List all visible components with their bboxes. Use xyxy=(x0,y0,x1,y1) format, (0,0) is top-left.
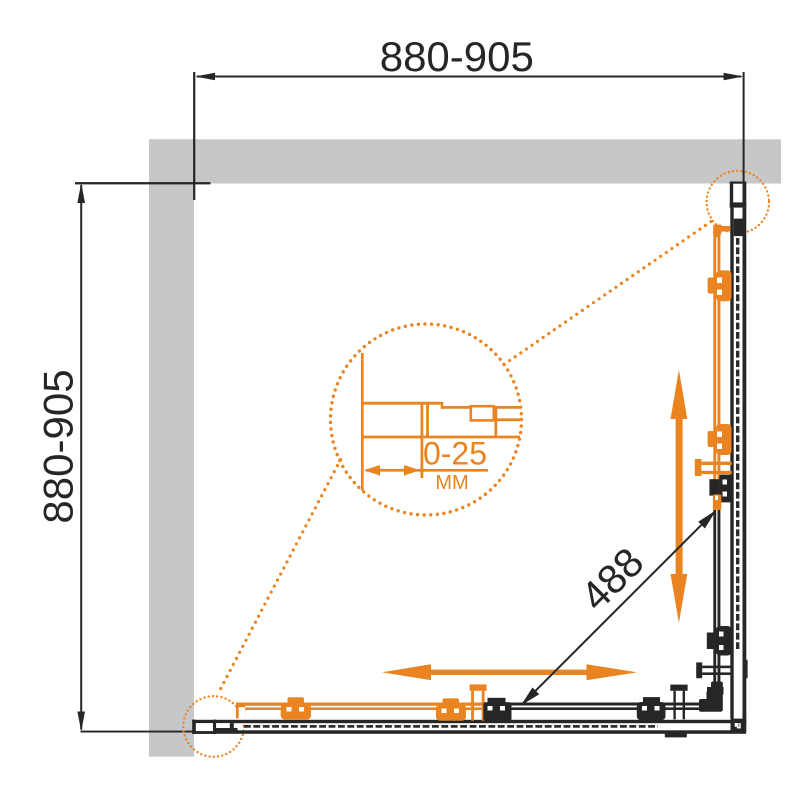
svg-text:0-25: 0-25 xyxy=(423,436,487,472)
svg-text:880-905: 880-905 xyxy=(380,33,534,80)
svg-text:880-905: 880-905 xyxy=(35,369,82,523)
svg-text:MM: MM xyxy=(435,472,468,494)
